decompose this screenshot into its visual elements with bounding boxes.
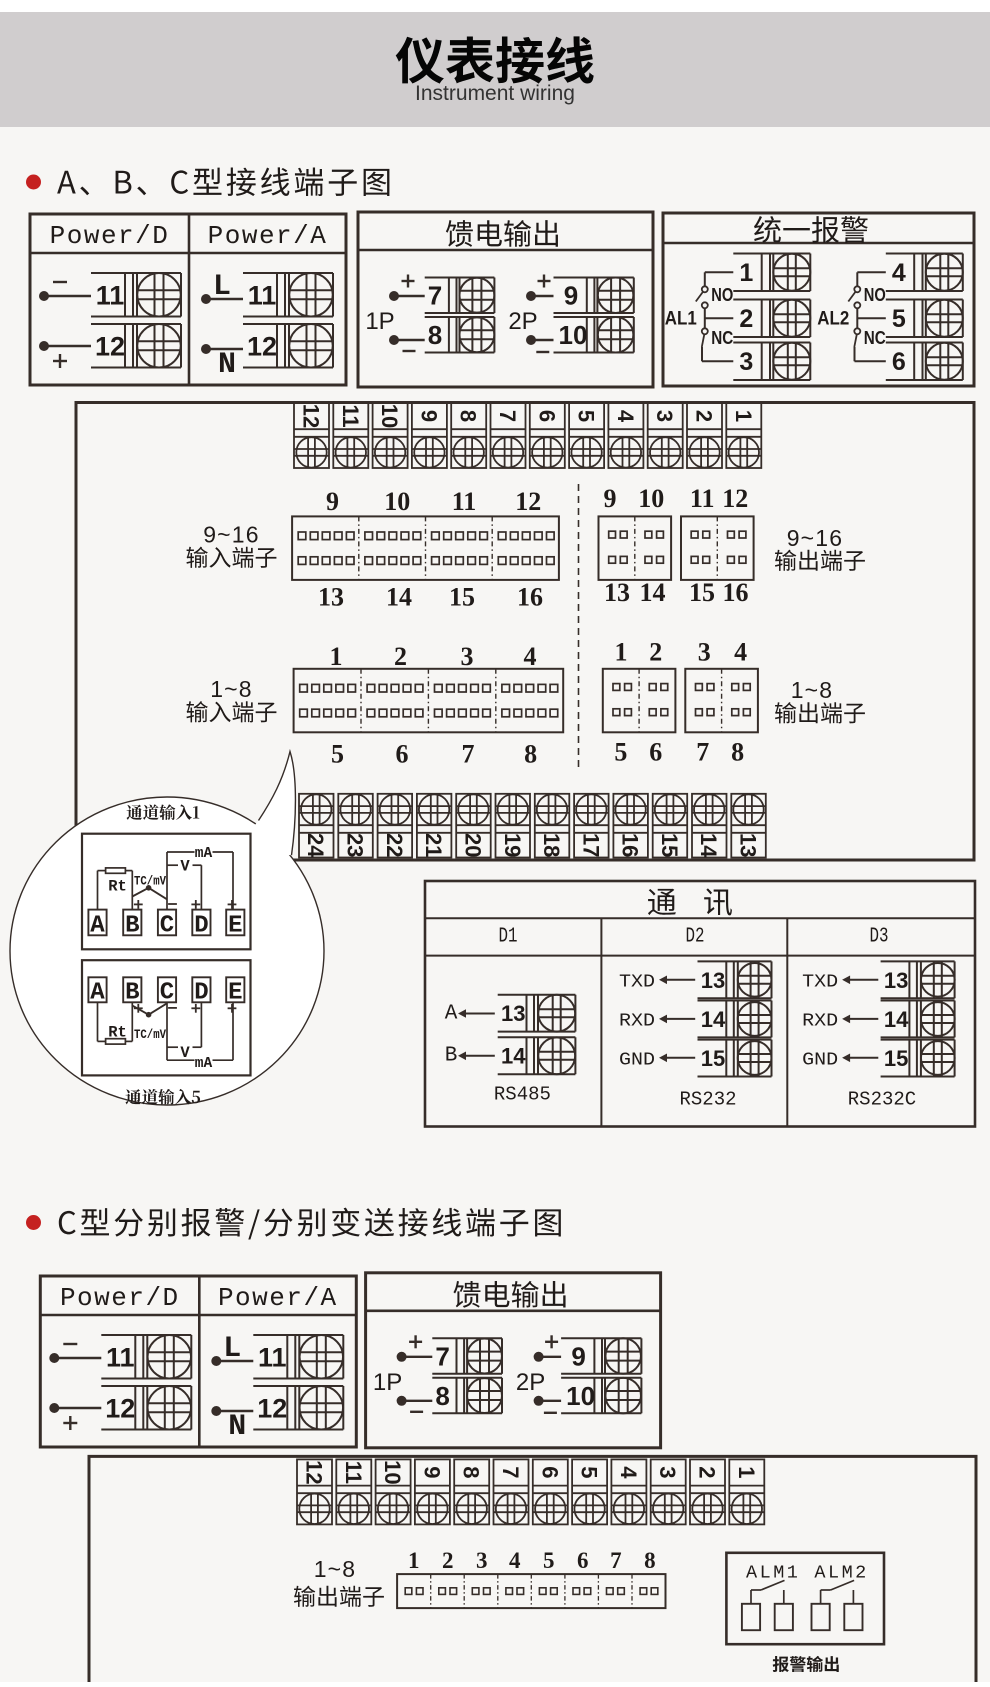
svg-text:9~16: 9~16 [203, 522, 260, 548]
svg-text:16: 16 [618, 833, 643, 857]
svg-text:Rt: Rt [108, 1023, 127, 1041]
svg-text:1~8: 1~8 [210, 676, 253, 702]
svg-text:13: 13 [884, 968, 908, 993]
svg-text:13: 13 [318, 583, 344, 612]
svg-text:21: 21 [421, 833, 446, 857]
svg-text:mA: mA [195, 1056, 213, 1072]
svg-text:1: 1 [408, 1548, 420, 1573]
svg-text:6: 6 [649, 737, 662, 766]
svg-text:5: 5 [331, 740, 344, 769]
svg-text:6: 6 [534, 410, 559, 422]
svg-text:AL2: AL2 [817, 309, 849, 330]
svg-text:14: 14 [501, 1044, 526, 1069]
svg-text:2: 2 [394, 642, 407, 671]
svg-text:3: 3 [476, 1548, 488, 1573]
svg-text:Power/D: Power/D [50, 221, 170, 251]
svg-text:1: 1 [731, 410, 756, 422]
svg-text:A: A [445, 1003, 458, 1026]
svg-text:5: 5 [543, 1548, 555, 1573]
svg-text:2: 2 [649, 637, 662, 666]
svg-text:7: 7 [428, 281, 442, 311]
svg-text:8: 8 [731, 737, 744, 766]
svg-text:9: 9 [564, 281, 578, 311]
svg-text:12: 12 [95, 332, 125, 362]
svg-text:11: 11 [338, 404, 363, 427]
svg-text:Rt: Rt [108, 878, 127, 896]
svg-text:14: 14 [696, 833, 721, 858]
svg-text:11: 11 [248, 281, 277, 311]
svg-text:ALM2: ALM2 [814, 1563, 868, 1584]
svg-text:NO: NO [864, 285, 886, 305]
svg-text:B: B [125, 979, 139, 1006]
svg-text:B: B [125, 913, 139, 940]
svg-text:3: 3 [652, 410, 677, 422]
svg-text:D: D [194, 913, 208, 940]
svg-text:V: V [180, 857, 190, 875]
svg-text:11: 11 [96, 281, 125, 311]
svg-text:13: 13 [501, 1001, 525, 1026]
svg-text:15: 15 [884, 1046, 908, 1071]
svg-text:19: 19 [500, 833, 525, 857]
svg-text:RXD: RXD [619, 1012, 655, 1032]
svg-text:8: 8 [428, 320, 442, 350]
svg-text:8: 8 [644, 1548, 656, 1573]
svg-text:15: 15 [657, 833, 682, 857]
svg-text:L: L [213, 270, 231, 304]
svg-text:Power/A: Power/A [208, 221, 328, 251]
svg-text:D2: D2 [686, 926, 705, 949]
svg-text:B: B [445, 1045, 458, 1068]
svg-text:16: 16 [723, 578, 749, 607]
svg-text:3: 3 [461, 642, 474, 671]
svg-text:4: 4 [509, 1548, 521, 1573]
svg-text:15: 15 [689, 578, 715, 607]
svg-text:2P: 2P [508, 308, 537, 335]
svg-text:3: 3 [739, 348, 753, 376]
svg-text:D3: D3 [870, 926, 889, 949]
svg-text:7: 7 [610, 1548, 622, 1573]
svg-text:TXD: TXD [619, 973, 655, 993]
svg-text:15: 15 [449, 583, 475, 612]
svg-text:3: 3 [698, 637, 711, 666]
svg-text:mA: mA [195, 846, 213, 862]
svg-text:12: 12 [722, 484, 748, 513]
svg-text:RS232C: RS232C [848, 1089, 916, 1111]
svg-text:12: 12 [247, 332, 277, 362]
svg-text:4: 4 [892, 259, 906, 287]
svg-text:1P: 1P [365, 308, 394, 335]
svg-text:24: 24 [303, 833, 328, 858]
svg-text:C: C [160, 913, 174, 940]
svg-text:2: 2 [739, 305, 753, 333]
svg-text:2: 2 [692, 410, 717, 422]
svg-text:6: 6 [892, 348, 906, 376]
svg-text:10: 10 [638, 484, 664, 513]
svg-text:C: C [160, 979, 174, 1006]
svg-text:12: 12 [515, 487, 541, 516]
svg-text:13: 13 [701, 968, 725, 993]
svg-text:11: 11 [452, 487, 477, 516]
svg-text:4: 4 [613, 410, 638, 423]
svg-text:1~8: 1~8 [791, 677, 834, 703]
svg-text:NC: NC [864, 328, 886, 348]
svg-text:10: 10 [377, 404, 402, 428]
svg-text:Instrument wiring: Instrument wiring [415, 82, 575, 105]
svg-text:1: 1 [330, 642, 343, 671]
svg-text:1: 1 [615, 637, 628, 666]
svg-text:12: 12 [299, 404, 324, 428]
svg-text:A: A [90, 979, 105, 1006]
svg-text:13: 13 [604, 578, 630, 607]
svg-text:6: 6 [577, 1548, 589, 1573]
svg-text:14: 14 [386, 583, 412, 612]
svg-text:13: 13 [736, 833, 761, 857]
svg-text:RXD: RXD [802, 1012, 838, 1032]
svg-text:20: 20 [460, 833, 485, 857]
svg-text:1~8: 1~8 [314, 1556, 357, 1582]
svg-text:17: 17 [578, 833, 603, 857]
svg-text:7: 7 [696, 737, 709, 766]
svg-text:2: 2 [442, 1548, 454, 1573]
svg-text:10: 10 [559, 320, 588, 350]
svg-text:RS485: RS485 [494, 1084, 551, 1106]
svg-text:NC: NC [711, 328, 733, 348]
svg-text:4: 4 [524, 642, 537, 671]
svg-text:23: 23 [343, 833, 368, 857]
svg-text:14: 14 [640, 578, 666, 607]
svg-text:V: V [180, 1044, 190, 1062]
svg-text:N: N [218, 348, 236, 382]
svg-text:ALM1: ALM1 [746, 1563, 800, 1584]
svg-text:1: 1 [739, 259, 753, 287]
svg-text:GND: GND [802, 1051, 838, 1071]
svg-text:7: 7 [495, 410, 520, 422]
svg-text:TXD: TXD [802, 973, 838, 993]
svg-text:5: 5 [574, 410, 599, 422]
svg-text:D1: D1 [499, 926, 518, 949]
svg-text:14: 14 [884, 1007, 909, 1032]
svg-text:A: A [90, 913, 105, 940]
svg-text:9: 9 [326, 487, 339, 516]
svg-text:9: 9 [604, 484, 617, 513]
svg-text:10: 10 [384, 487, 410, 516]
svg-text:14: 14 [701, 1007, 726, 1032]
svg-text:AL1: AL1 [665, 309, 697, 330]
svg-text:4: 4 [734, 637, 747, 666]
svg-text:9~16: 9~16 [787, 525, 844, 551]
svg-text:6: 6 [396, 740, 409, 769]
svg-text:22: 22 [382, 833, 407, 857]
svg-text:TC/mV: TC/mV [134, 874, 166, 889]
svg-text:E: E [228, 979, 242, 1006]
svg-text:NO: NO [711, 285, 733, 305]
svg-text:8: 8 [456, 410, 481, 422]
svg-text:5: 5 [614, 737, 627, 766]
svg-text:11: 11 [690, 484, 715, 513]
svg-text:TC/mV: TC/mV [134, 1027, 166, 1042]
svg-text:15: 15 [701, 1046, 725, 1071]
svg-text:E: E [228, 913, 242, 940]
svg-text:D: D [194, 979, 208, 1006]
svg-text:18: 18 [539, 833, 564, 857]
svg-text:RS232: RS232 [679, 1089, 736, 1111]
svg-text:16: 16 [517, 583, 543, 612]
svg-text:8: 8 [524, 740, 537, 769]
svg-text:7: 7 [462, 740, 475, 769]
svg-text:9: 9 [416, 410, 441, 422]
svg-text:GND: GND [619, 1051, 655, 1071]
svg-text:5: 5 [892, 305, 906, 333]
